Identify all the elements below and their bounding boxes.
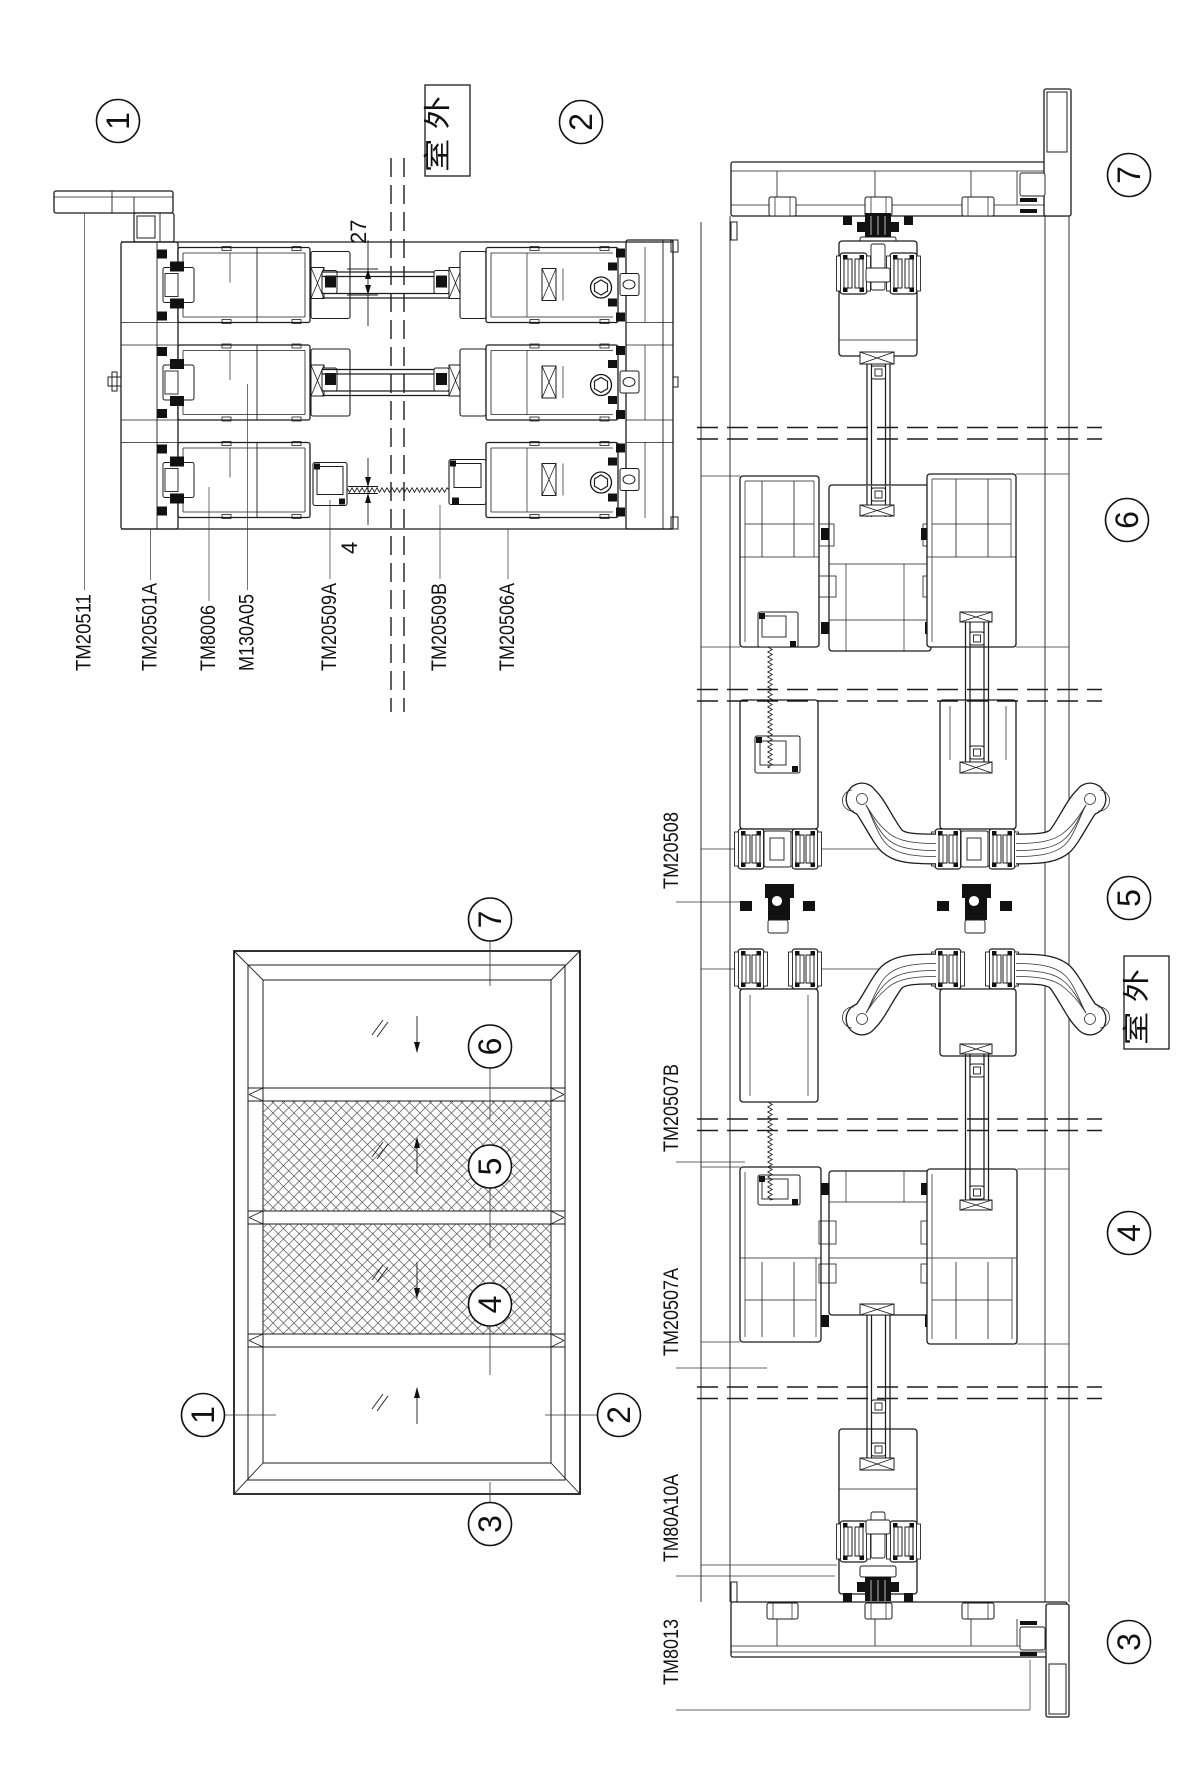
svg-text:M130A05: M130A05 xyxy=(236,594,259,671)
svg-text:TM20509B: TM20509B xyxy=(428,583,451,671)
svg-text:TM8006: TM8006 xyxy=(197,605,220,671)
svg-text:3: 3 xyxy=(472,1515,508,1533)
svg-text:TM20508: TM20508 xyxy=(660,812,683,889)
svg-text:6: 6 xyxy=(472,1038,508,1056)
svg-text:4: 4 xyxy=(472,1296,508,1314)
svg-text:3: 3 xyxy=(1111,1633,1147,1651)
svg-text:1: 1 xyxy=(100,112,136,130)
svg-text:7: 7 xyxy=(1111,166,1147,184)
svg-text:TM20501A: TM20501A xyxy=(139,583,162,671)
svg-text:TM20507A: TM20507A xyxy=(660,1268,683,1356)
svg-text:TM8013: TM8013 xyxy=(660,1619,683,1685)
svg-text:1: 1 xyxy=(185,1406,221,1424)
svg-text:5: 5 xyxy=(1111,889,1147,907)
svg-text:4: 4 xyxy=(1111,1224,1147,1242)
svg-text:室 外: 室 外 xyxy=(1122,969,1152,1045)
svg-text:7: 7 xyxy=(472,911,508,929)
svg-text:TM20506A: TM20506A xyxy=(496,583,519,671)
svg-text:TM20509A: TM20509A xyxy=(318,583,341,671)
svg-text:TM20511: TM20511 xyxy=(73,594,96,671)
svg-text:TM80A10A: TM80A10A xyxy=(660,1474,683,1562)
svg-text:5: 5 xyxy=(472,1158,508,1176)
svg-text:4: 4 xyxy=(337,542,362,554)
svg-text:室 外: 室 外 xyxy=(423,96,453,172)
svg-text:27: 27 xyxy=(346,220,371,244)
svg-text:2: 2 xyxy=(563,113,599,131)
svg-text:6: 6 xyxy=(1109,511,1145,529)
svg-text:2: 2 xyxy=(601,1406,637,1424)
svg-text:TM20507B: TM20507B xyxy=(660,1064,683,1152)
